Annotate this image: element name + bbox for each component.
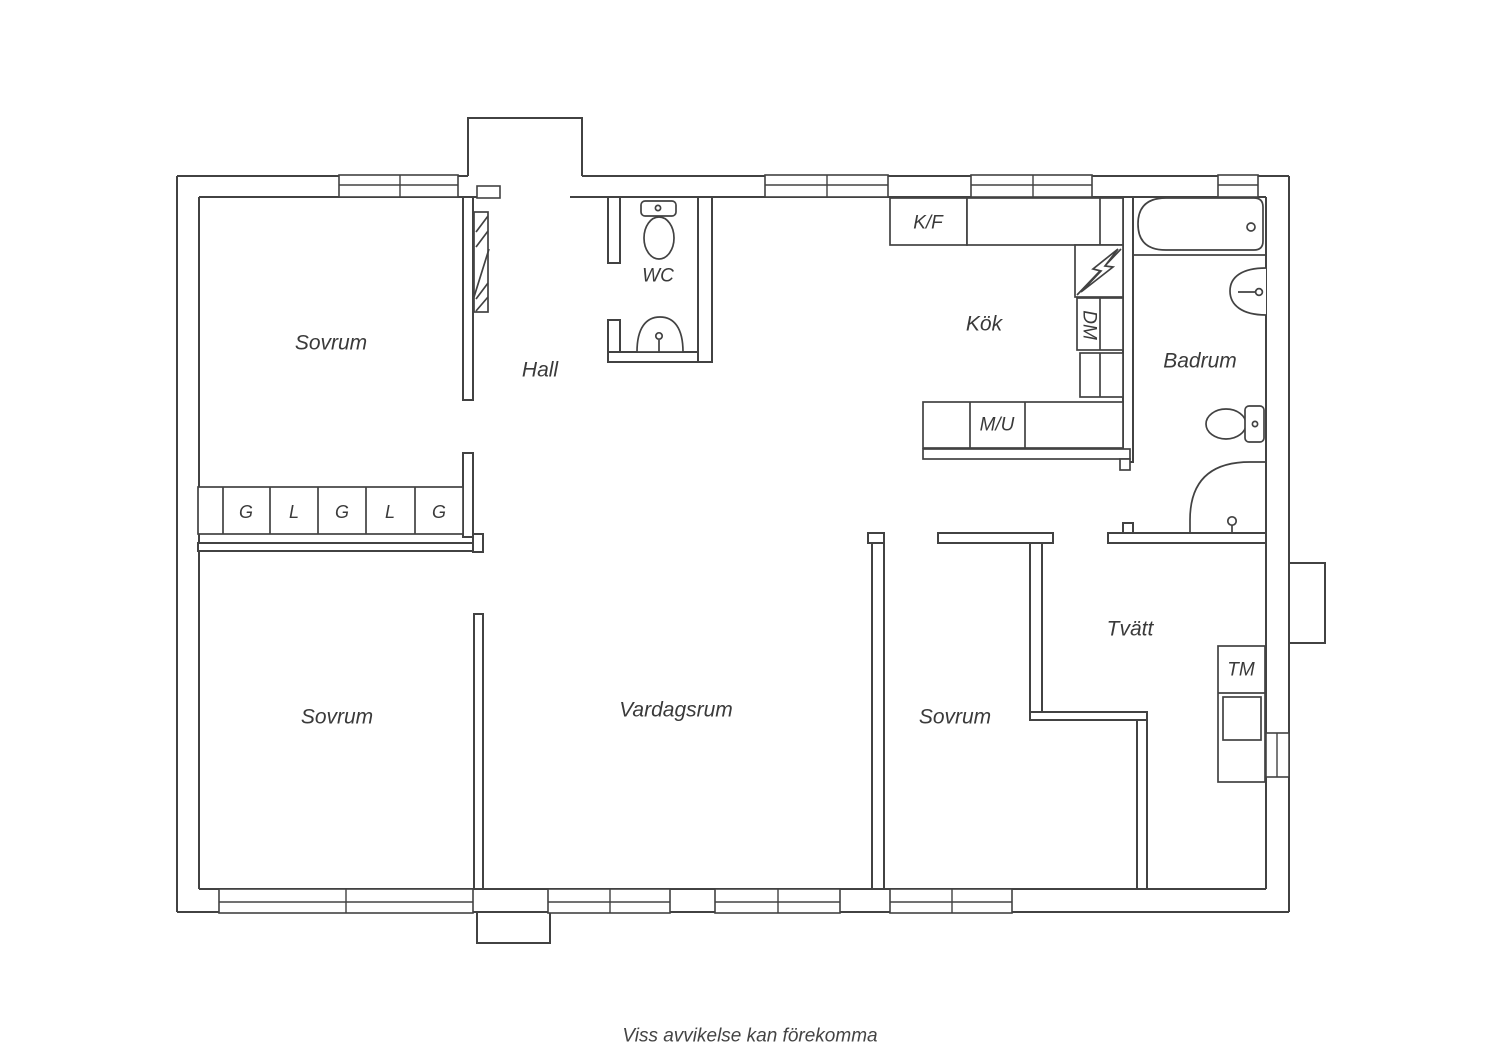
room-label-vardagsrum: Vardagsrum [619,699,733,722]
disclaimer-text: Viss avvikelse kan förekomma [622,1026,877,1047]
wall-sovrum3-step [1030,712,1147,720]
laundry-sink-box [1223,697,1261,740]
room-label-sovrum-1: Sovrum [295,332,367,355]
wall-sovrum2-right [474,614,483,889]
wall-badrum-south [1108,533,1266,543]
wall-wc-left-upper [608,197,620,263]
room-label-sovrum-3: Sovrum [919,706,991,729]
wall-sovrum3-left [872,543,884,889]
floor-plan-page: G L G L G [0,0,1500,1060]
room-label-kok: Kök [966,313,1004,336]
window-sovrum1-top [339,175,458,197]
badrum-sink-tap [1256,289,1263,296]
wc-toilet [641,201,676,259]
hall-coat-rack [474,212,489,312]
badrum-sink [1230,268,1266,315]
room-label-wc: WC [642,266,674,287]
wall-kok-badrum [1123,197,1133,462]
entrance-porch [468,118,582,176]
coat-rack-outline [474,212,488,312]
bathtub-outline [1138,198,1263,250]
badrum-toilet-button [1252,421,1257,426]
room-label-tvatt: Tvätt [1107,618,1155,641]
closet-row-outline [198,487,463,534]
kitchen-counter-end-step [1120,459,1130,470]
kitchen-bottom-counter [923,402,1123,448]
wall-sovrum2-top [198,543,474,551]
wc-toilet-button [655,205,660,210]
closet-row: G L G L G [198,487,463,534]
window-badrum-top [1218,175,1258,197]
floor-plan-canvas: G L G L G [0,0,1500,1060]
wc-toilet-bowl [644,217,674,259]
badrum-toilet [1206,406,1264,442]
wc-sink-tap [656,333,662,339]
room-label-badrum: Badrum [1163,350,1237,373]
right-wall-bump [1289,563,1325,643]
window-sovrum2-bottom [219,889,473,913]
wc-sink [637,317,683,352]
closet-label-5: G [432,502,446,522]
label-micro-oven: M/U [980,415,1015,436]
window-kok-top [971,175,1092,197]
window-vardagsrum-bottom-1 [548,889,670,913]
bathtub [1133,198,1266,255]
bottom-porch [477,912,550,943]
wall-sovrum3-right-upper [1030,543,1042,712]
window-sovrum3-bottom [890,889,1012,913]
wall-sovrum3-left-cap [868,533,884,543]
closet-label-1: G [239,502,253,522]
entrance-threshold [477,186,500,198]
room-label-sovrum-2: Sovrum [301,706,373,729]
wall-step-block [473,534,483,552]
shower-corner [1190,462,1266,534]
window-hall-top [765,175,888,197]
wall-wc-bottom [608,352,712,362]
closet-label-2: L [289,502,299,522]
bathtub-drain [1247,223,1255,231]
room-label-hall: Hall [522,359,560,382]
closet-label-4: L [385,502,395,522]
label-washing-machine: TM [1227,660,1255,681]
window-tvatt-right [1266,733,1289,777]
wall-wc-right [698,197,712,362]
label-dishwasher: DM [1079,310,1100,340]
kitchen-counter-lip [923,449,1130,459]
closet-label-3: G [335,502,349,522]
wall-sovrum3-top [938,533,1053,543]
kitchen-lower-cabinet [1080,353,1123,397]
badrum-toilet-bowl [1206,409,1246,439]
label-fridge-freezer: K/F [913,213,944,234]
shower-mixer-stand [1224,525,1240,533]
wall-sovrum3-right-lower [1137,720,1147,889]
window-vardagsrum-bottom-2 [715,889,840,913]
shower-mixer-knob [1228,517,1236,525]
wall-sovrum1-right-upper [463,197,473,400]
wall-sovrum1-right-lower [463,453,473,537]
